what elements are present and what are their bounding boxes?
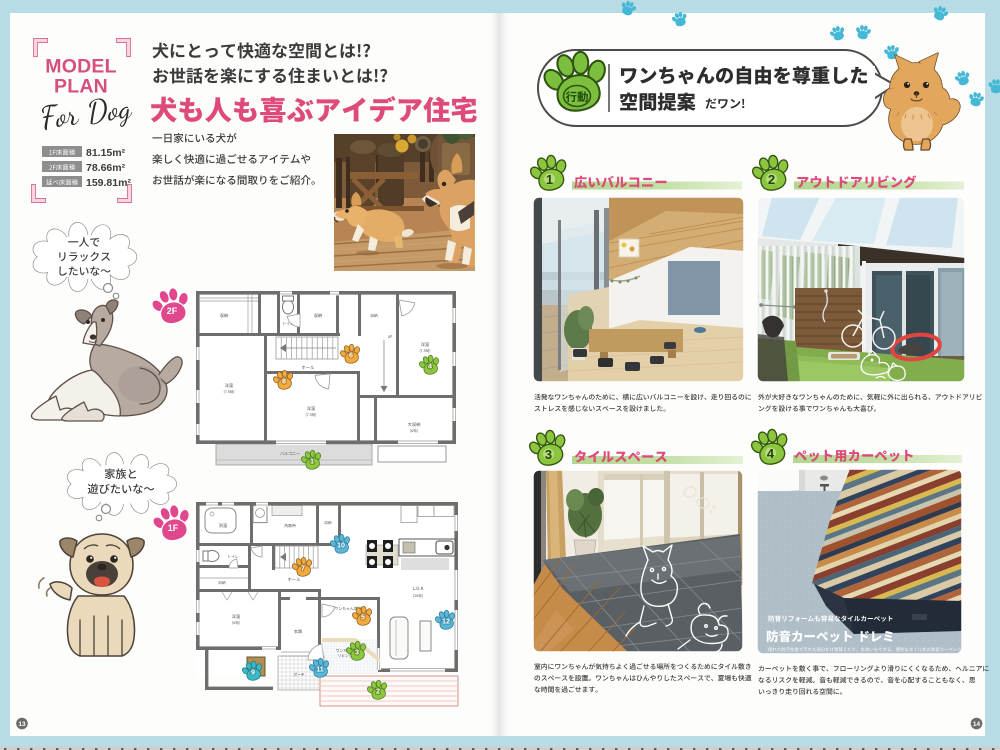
svg-text:12: 12 [442, 617, 450, 626]
svg-text:81.15m²: 81.15m² [86, 147, 126, 159]
svg-text:PLAN: PLAN [54, 76, 108, 98]
svg-text:1: 1 [310, 457, 314, 466]
svg-text:2: 2 [768, 172, 775, 187]
svg-text:6: 6 [349, 351, 353, 360]
svg-text:5: 5 [361, 613, 365, 622]
svg-text:3: 3 [545, 447, 552, 462]
svg-text:9: 9 [251, 668, 255, 677]
svg-text:14: 14 [973, 721, 981, 728]
svg-text:1F: 1F [168, 523, 179, 533]
svg-text:11: 11 [316, 665, 324, 674]
svg-text:2F: 2F [167, 306, 178, 316]
svg-text:8: 8 [282, 377, 286, 386]
svg-text:10: 10 [337, 541, 345, 550]
svg-text:3: 3 [355, 648, 359, 657]
svg-text:MODEL: MODEL [45, 56, 116, 78]
svg-text:4: 4 [767, 446, 775, 461]
svg-text:7: 7 [301, 564, 305, 573]
svg-text:78.66m²: 78.66m² [86, 162, 126, 174]
svg-text:1: 1 [546, 172, 553, 187]
svg-text:13: 13 [18, 721, 26, 728]
svg-text:4: 4 [428, 362, 432, 371]
svg-text:2: 2 [376, 687, 380, 696]
svg-text:159.81m²: 159.81m² [86, 177, 131, 189]
